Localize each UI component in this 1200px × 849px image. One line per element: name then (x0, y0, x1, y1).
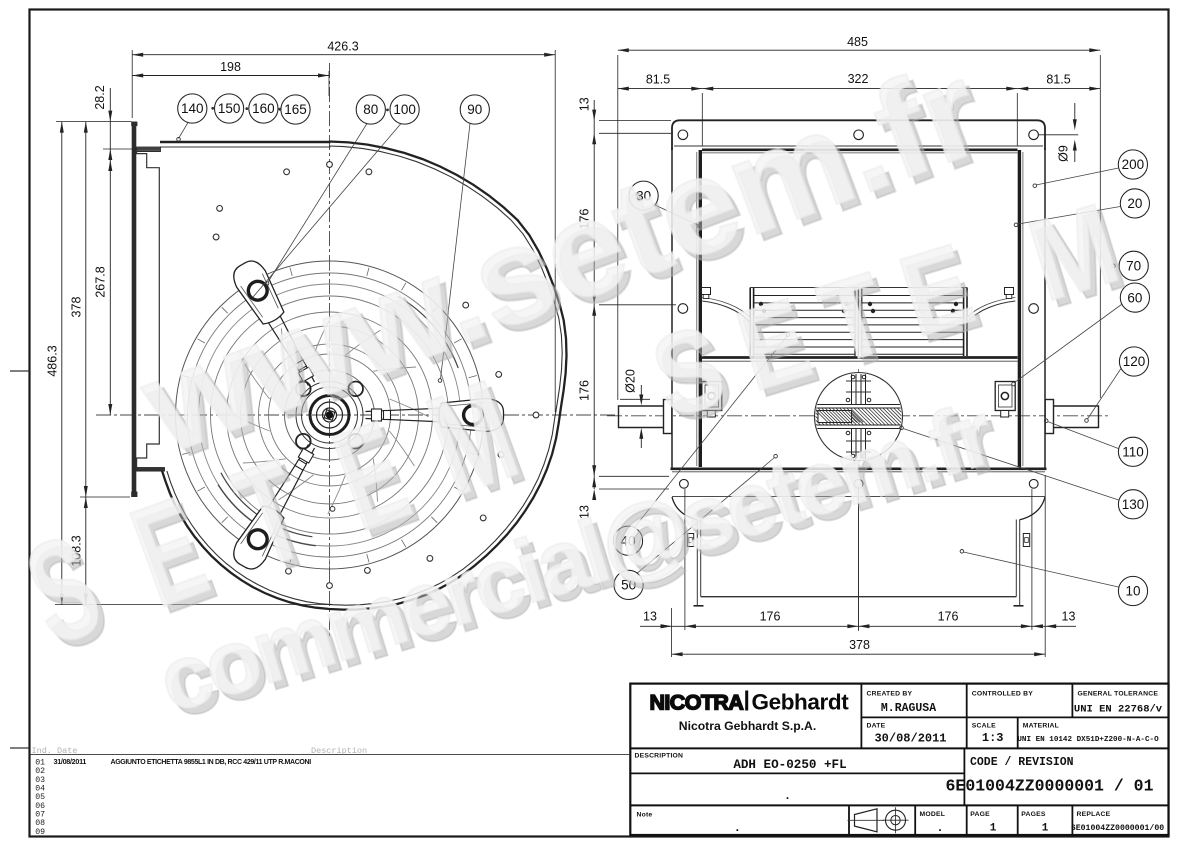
svg-text:CREATED BY: CREATED BY (867, 691, 913, 698)
svg-text:90: 90 (467, 102, 482, 117)
svg-text:Nicotra Gebhardt S.p.A.: Nicotra Gebhardt S.p.A. (679, 719, 816, 733)
svg-text:DATE: DATE (867, 723, 886, 730)
svg-text:Ø20: Ø20 (624, 369, 638, 393)
svg-text:165: 165 (284, 102, 307, 117)
svg-text:6E01004ZZ0000001 / 01: 6E01004ZZ0000001 / 01 (946, 777, 1154, 796)
svg-text:176: 176 (760, 610, 781, 624)
svg-text:ADH EO-0250 +FL: ADH EO-0250 +FL (733, 758, 846, 772)
svg-text:.: . (936, 821, 943, 835)
svg-text:150: 150 (218, 101, 241, 116)
svg-text:1: 1 (990, 823, 997, 835)
svg-text:486.3: 486.3 (46, 345, 60, 376)
svg-text:CONTROLLED BY: CONTROLLED BY (972, 691, 1033, 698)
svg-text:06: 06 (35, 802, 45, 811)
svg-text:100: 100 (393, 102, 416, 117)
svg-text:176: 176 (938, 610, 959, 624)
svg-text:05: 05 (35, 793, 45, 802)
svg-text:10: 10 (1125, 584, 1140, 599)
svg-text:6E01004ZZ0000001/00: 6E01004ZZ0000001/00 (1071, 823, 1164, 833)
svg-text:Ind.: Ind. (32, 746, 52, 756)
svg-text:MODEL: MODEL (920, 811, 946, 818)
svg-text:MATERIAL: MATERIAL (1023, 723, 1059, 730)
svg-text:M.RAGUSA: M.RAGUSA (881, 702, 936, 715)
svg-text:140: 140 (181, 101, 204, 116)
svg-text:31/08/2011: 31/08/2011 (54, 757, 87, 766)
svg-text:426.3: 426.3 (327, 40, 358, 54)
svg-text:13: 13 (643, 610, 657, 624)
svg-text:.: . (734, 821, 741, 835)
svg-text:CODE / REVISION: CODE / REVISION (970, 756, 1074, 769)
svg-text:200: 200 (1122, 157, 1145, 172)
svg-text:Date: Date (57, 746, 77, 756)
svg-text:198: 198 (220, 60, 241, 74)
svg-text:09: 09 (35, 828, 45, 837)
svg-text:30/08/2011: 30/08/2011 (874, 732, 946, 746)
svg-text:80: 80 (363, 102, 378, 117)
svg-text:08: 08 (35, 819, 45, 828)
svg-text:Ø9: Ø9 (1057, 145, 1071, 162)
svg-text:NICOTRA: NICOTRA (650, 690, 744, 714)
svg-text:160: 160 (252, 101, 275, 116)
svg-text:DESCRIPTION: DESCRIPTION (635, 753, 684, 760)
svg-text:13: 13 (1062, 610, 1076, 624)
svg-text:UNI EN 22768/v: UNI EN 22768/v (1074, 704, 1163, 716)
svg-text:378: 378 (849, 638, 870, 652)
svg-text:1: 1 (1042, 823, 1049, 835)
svg-text:PAGE: PAGE (970, 811, 990, 818)
svg-text:SCALE: SCALE (972, 723, 996, 730)
svg-text:.: . (784, 789, 791, 803)
svg-text:110: 110 (1122, 445, 1144, 460)
svg-text:120: 120 (1123, 354, 1146, 369)
svg-text:Gebhardt: Gebhardt (752, 689, 850, 714)
svg-text:GENERAL TOLERANCE: GENERAL TOLERANCE (1078, 691, 1159, 698)
svg-text:PAGES: PAGES (1021, 811, 1046, 818)
svg-text:Description: Description (311, 746, 367, 756)
svg-text:REPLACE: REPLACE (1077, 811, 1111, 818)
svg-text:176: 176 (578, 380, 592, 401)
svg-text:81.5: 81.5 (1046, 73, 1070, 87)
svg-text:378: 378 (70, 297, 84, 318)
svg-text:267.8: 267.8 (94, 266, 108, 297)
svg-text:13: 13 (578, 97, 592, 111)
svg-text:28.2: 28.2 (93, 85, 107, 109)
svg-text:485: 485 (847, 35, 868, 49)
svg-text:20: 20 (1127, 196, 1142, 211)
svg-text:1:3: 1:3 (982, 731, 1004, 745)
svg-text:03: 03 (35, 776, 45, 785)
svg-text:130: 130 (1122, 497, 1145, 512)
svg-text:81.5: 81.5 (646, 73, 670, 87)
svg-text:UNI EN 10142 DX51D+Z200-N-A-C-: UNI EN 10142 DX51D+Z200-N-A-C-O (1017, 736, 1159, 744)
svg-text:AGGIUNTO ETICHETTA 9855L1 IN D: AGGIUNTO ETICHETTA 9855L1 IN DB, RCC 429… (111, 759, 312, 766)
svg-text:70: 70 (1126, 259, 1141, 274)
svg-text:01: 01 (35, 759, 45, 768)
svg-text:Note: Note (637, 812, 653, 819)
